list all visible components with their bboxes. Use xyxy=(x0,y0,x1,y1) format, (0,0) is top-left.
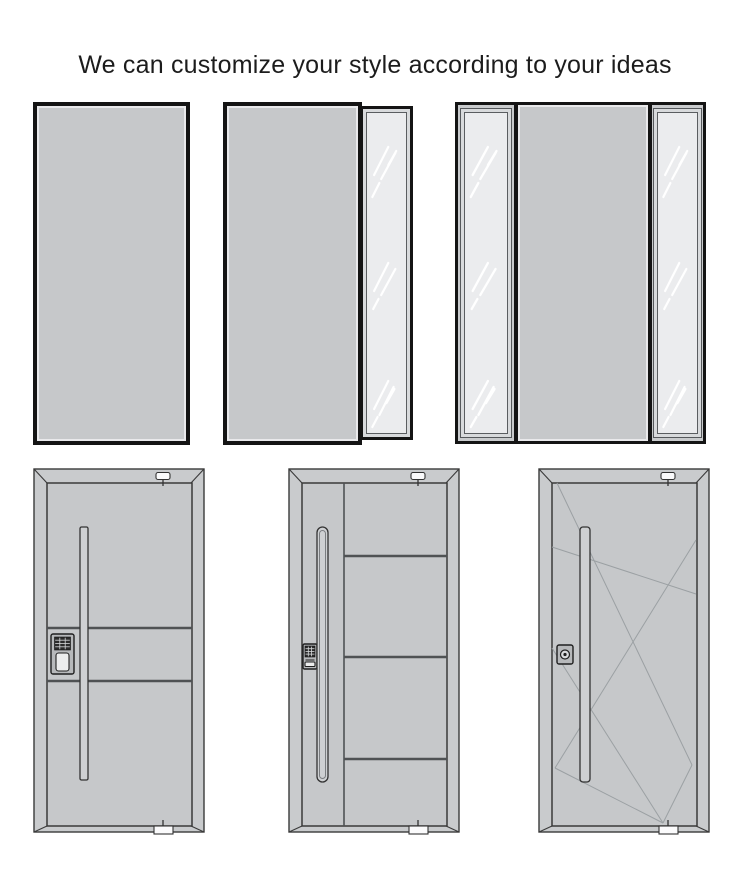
banner-title: We can customize your style according to… xyxy=(0,50,750,80)
cylinder-lock xyxy=(557,645,573,664)
bar-handle xyxy=(580,527,590,782)
keypad-lock xyxy=(51,634,74,674)
glass-reflection-streaks xyxy=(465,113,507,433)
right-sidelight-frame xyxy=(653,108,702,438)
door-leaf xyxy=(552,483,697,826)
door-design-diagonal-grooves xyxy=(538,468,710,836)
door-design-four-panels xyxy=(288,468,460,836)
sidelight-glass xyxy=(464,112,508,434)
config-door-right-sidelight xyxy=(223,102,413,445)
right-sidelight-frame xyxy=(360,106,413,440)
capsule-handle xyxy=(317,527,328,782)
door-panel xyxy=(223,102,362,445)
product-customization-banner: We can customize your style according to… xyxy=(0,0,750,895)
sidelight-glass xyxy=(366,112,407,434)
door-design-cross-grooves xyxy=(33,468,205,836)
glass-reflection-streaks xyxy=(658,113,697,433)
config-single-door xyxy=(33,102,190,445)
sidelight-glass xyxy=(657,112,698,434)
left-sidelight-frame xyxy=(460,108,512,438)
door-panel xyxy=(514,105,652,441)
config-door-double-sidelights xyxy=(455,102,706,444)
keypad-lock xyxy=(303,644,317,669)
glass-reflection-streaks xyxy=(367,113,406,433)
bar-handle xyxy=(80,527,88,780)
